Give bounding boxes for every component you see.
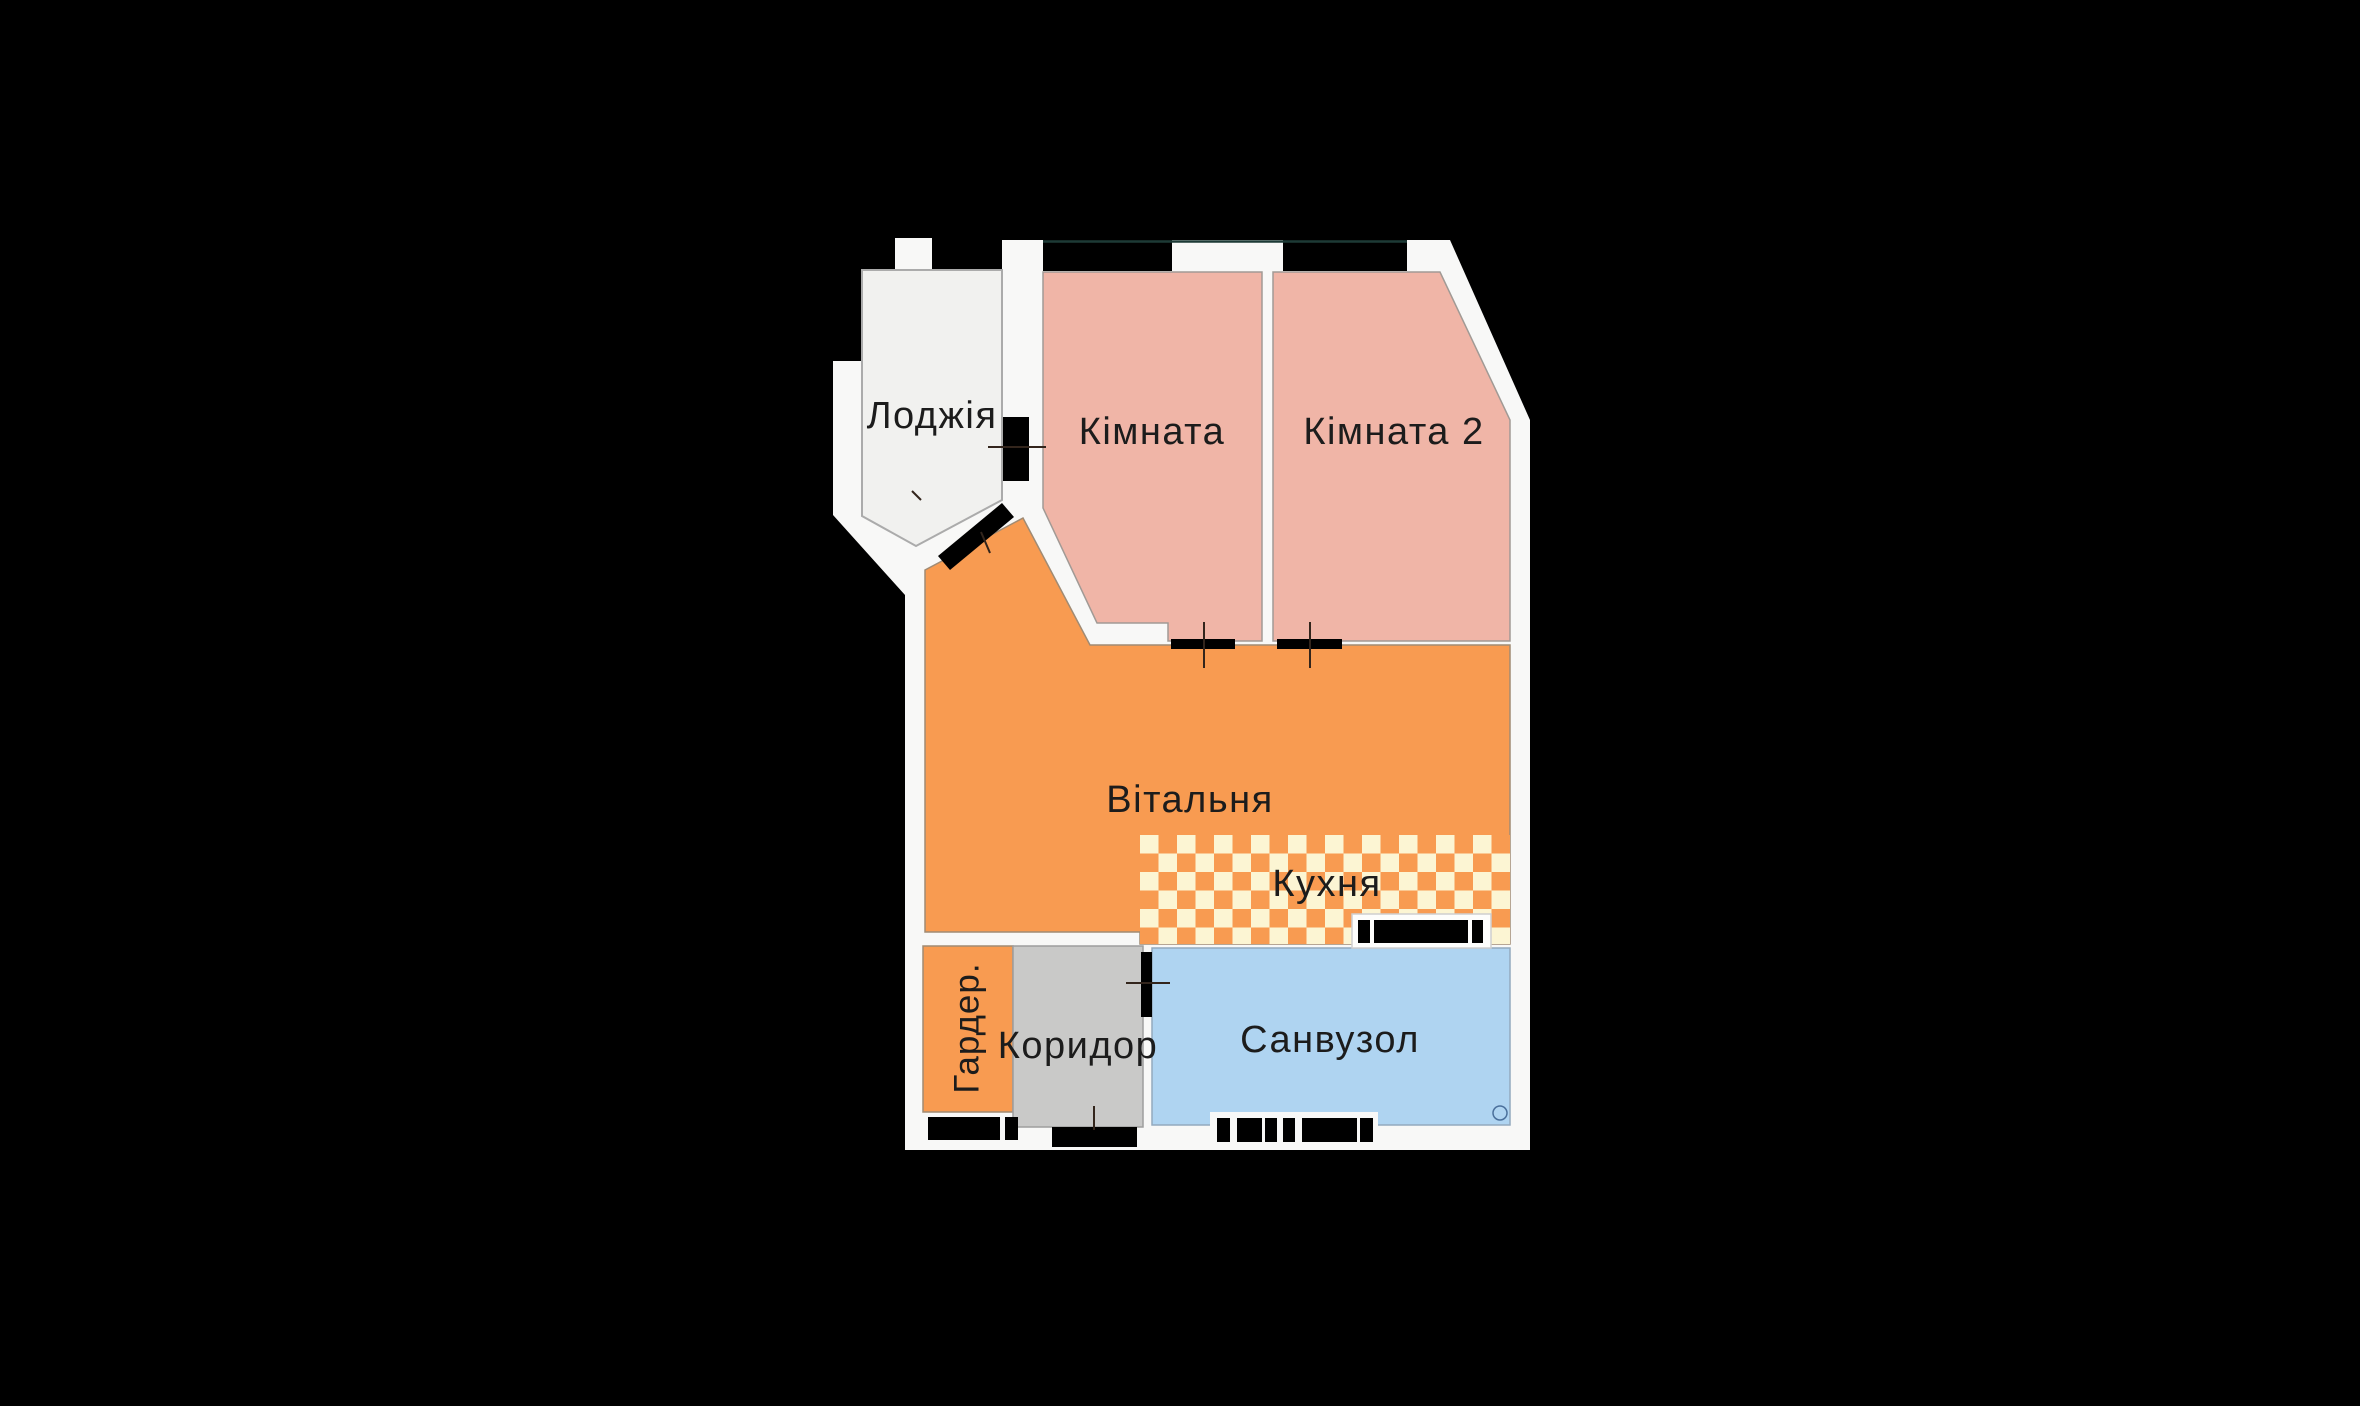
bathroom-fixture-icon xyxy=(1302,1118,1357,1142)
room-label-loggia: Лоджія xyxy=(867,395,998,437)
kitchen-counter-unit-icon xyxy=(1472,920,1483,943)
room-label-kitchen: Кухня xyxy=(1272,863,1381,905)
bathroom-door-icon xyxy=(1141,952,1152,1017)
bathroom-fixture-icon xyxy=(1217,1118,1230,1142)
kitchen-counter xyxy=(1352,914,1491,948)
loggia-window-icon xyxy=(1003,417,1029,481)
room-label-wardrobe: Гардер. xyxy=(948,962,987,1093)
kitchen-counter-unit-icon xyxy=(1374,920,1468,943)
room-label-bedroom-2: Кімната 2 xyxy=(1303,411,1484,453)
room-label-corridor: Коридор xyxy=(998,1025,1159,1067)
bathroom-fixture-icon xyxy=(1283,1118,1295,1142)
wall-segment-icon xyxy=(928,1117,1000,1140)
kitchen-counter-unit-icon xyxy=(1358,920,1370,943)
room-label-bedroom-1: Кімната xyxy=(1079,411,1226,453)
room-label-bathroom: Санвузол xyxy=(1240,1019,1420,1061)
bathroom-fixture-icon xyxy=(1237,1118,1262,1142)
window-bedroom-1 xyxy=(1043,240,1172,271)
wall-segment-icon xyxy=(1005,1117,1018,1140)
room-label-living: Вітальня xyxy=(1106,779,1273,821)
bathroom-fixture-icon xyxy=(1265,1118,1277,1142)
bathroom-fixture-icon xyxy=(1360,1118,1373,1142)
window-bedroom-2 xyxy=(1283,240,1407,271)
floor-plan-canvas: Лоджія Кімната Кімната 2 Вітальня Кухня … xyxy=(0,0,2360,1406)
floor-plan-svg: Лоджія Кімната Кімната 2 Вітальня Кухня … xyxy=(0,0,2360,1406)
